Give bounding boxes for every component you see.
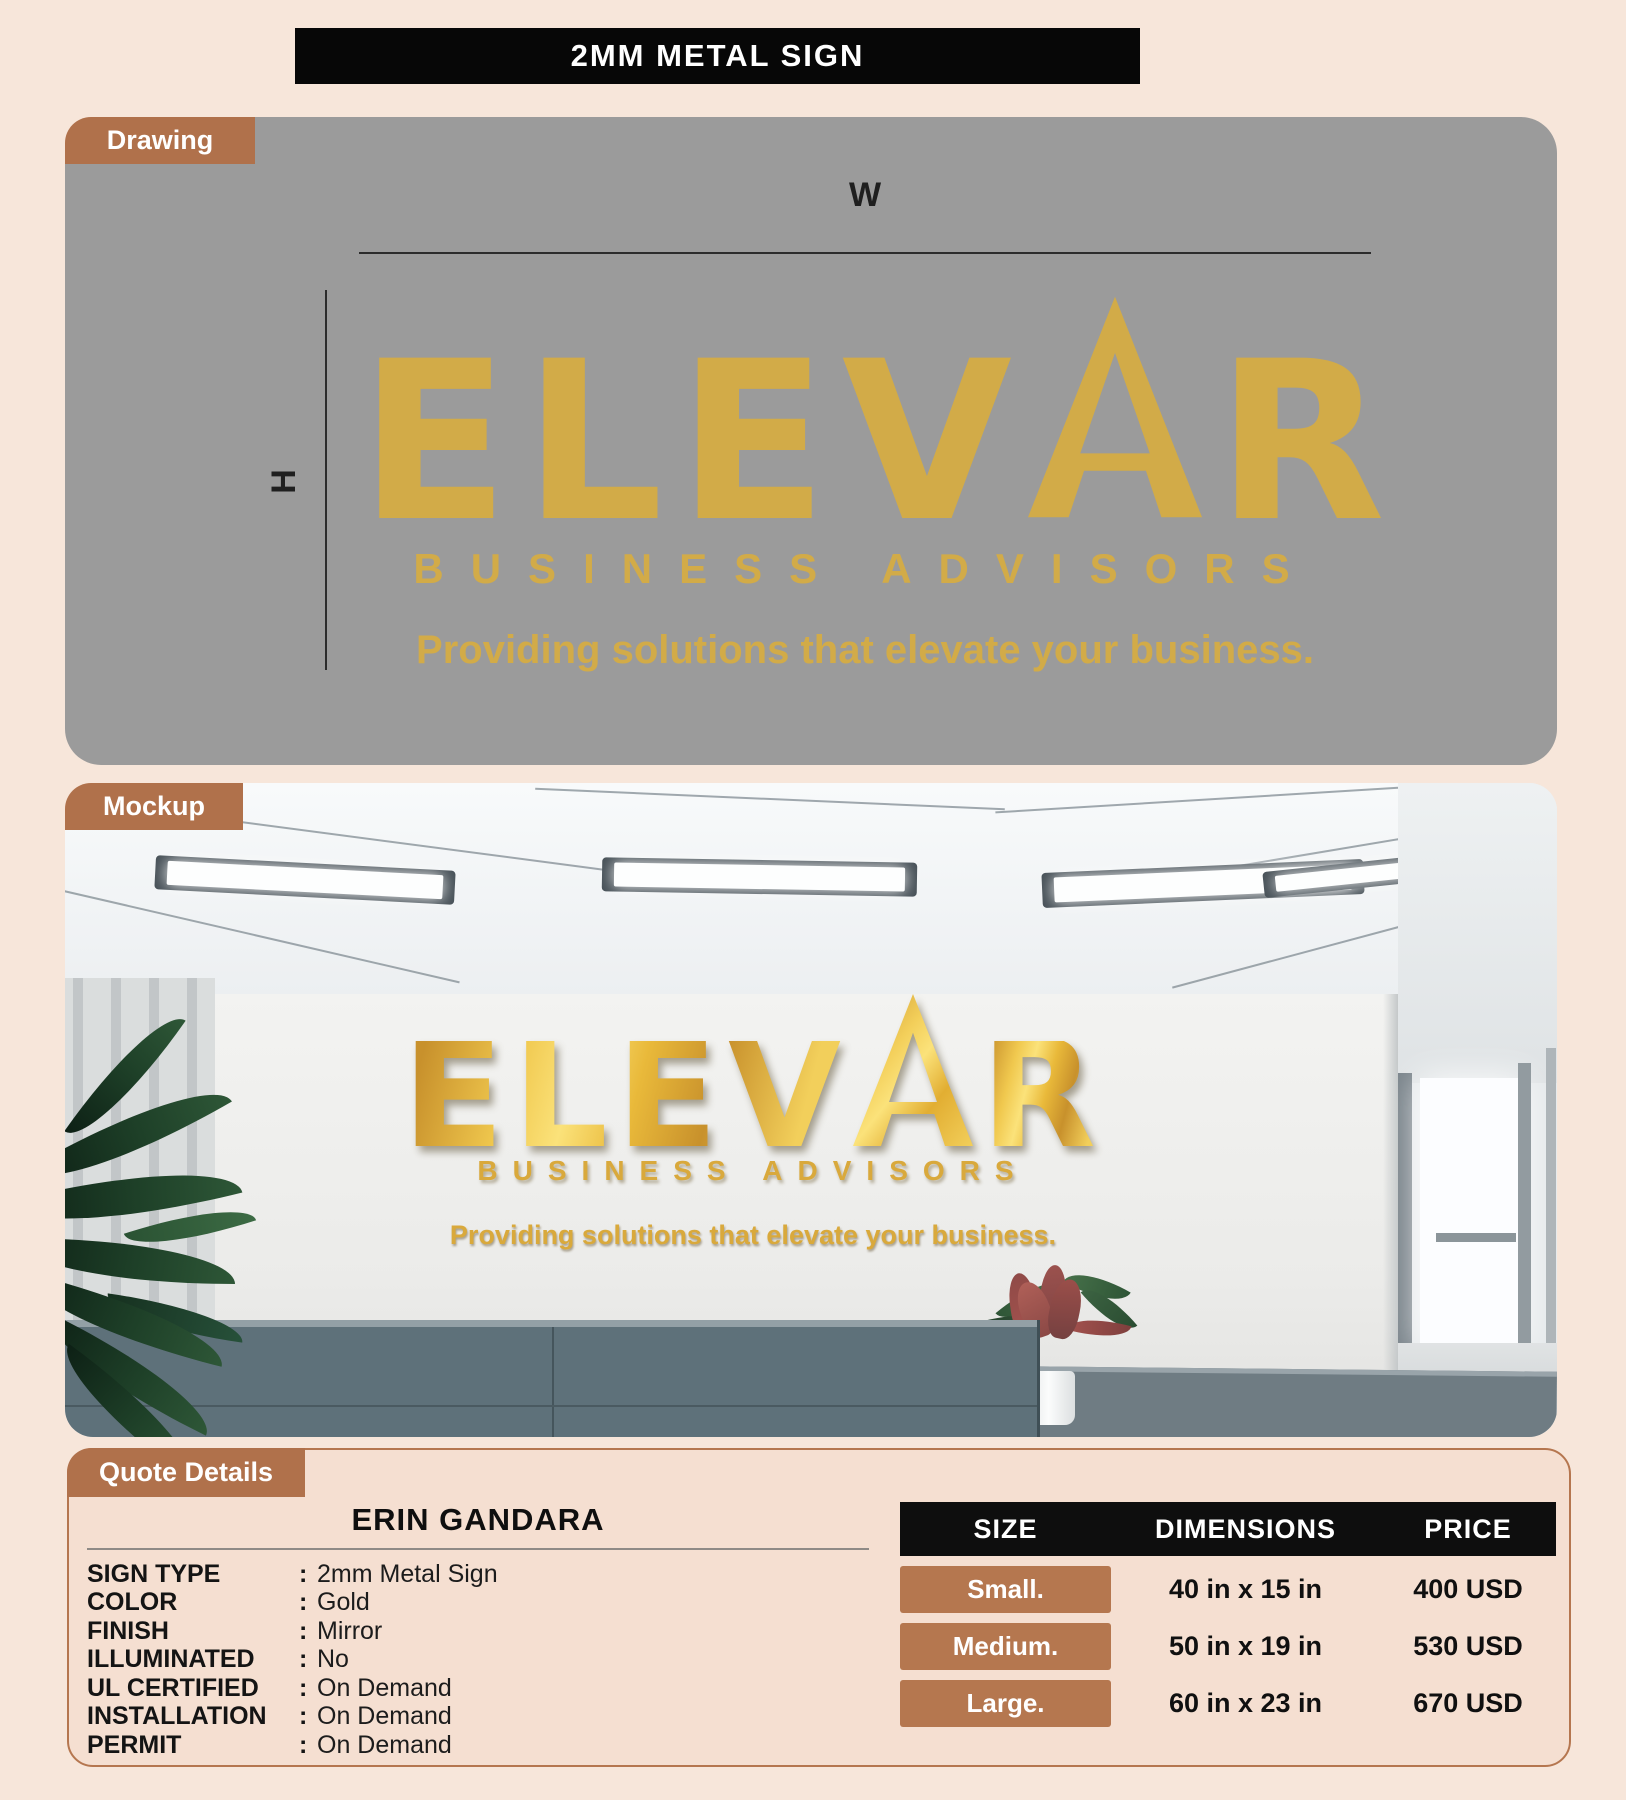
window-frame xyxy=(1518,1063,1531,1373)
logo-text-elev: ELEV xyxy=(359,362,1026,523)
sign-tagline: Providing solutions that elevate your bu… xyxy=(395,1220,1111,1251)
mockup-tab-label: Mockup xyxy=(103,791,205,822)
dimensions-value: 40 in x 15 in xyxy=(1111,1574,1380,1605)
door-frame xyxy=(1398,1073,1412,1373)
logo-text-r: R xyxy=(1216,362,1399,523)
drawing-tab-label: Drawing xyxy=(107,125,214,156)
customer-name: ERIN GANDARA xyxy=(87,1502,869,1538)
quote-details-tab: Quote Details xyxy=(67,1448,305,1497)
sign-subtitle: BUSINESS ADVISORS xyxy=(395,1155,1111,1187)
drawing-tab: Drawing xyxy=(65,117,255,164)
width-dimension-line xyxy=(359,252,1371,254)
dimensions-value: 60 in x 23 in xyxy=(1111,1688,1380,1719)
quote-field-row: PERMIT : On Demand xyxy=(87,1731,887,1760)
elevar-a-icon xyxy=(1028,296,1202,518)
size-option-medium[interactable]: Medium. xyxy=(900,1623,1111,1670)
pricing-table: SIZE DIMENSIONS PRICE Small. 40 in x 15 … xyxy=(900,1502,1556,1727)
col-header-size: SIZE xyxy=(900,1514,1111,1545)
price-value: 400 USD xyxy=(1380,1574,1556,1605)
pricing-row-medium: Medium. 50 in x 19 in 530 USD xyxy=(900,1623,1556,1670)
logo-text-elev: ELEV xyxy=(402,1041,851,1151)
ceiling-light xyxy=(602,857,918,896)
elevar-sign-mockup: ELEV R xyxy=(395,994,1111,1150)
bright-window xyxy=(1420,1078,1525,1348)
ceiling-grid-line xyxy=(535,788,1005,810)
window-frame xyxy=(1546,1048,1556,1393)
page-title: 2MM METAL SIGN xyxy=(571,38,865,74)
height-dimension-line xyxy=(325,290,327,670)
elevar-logo-drawing: ELEV R xyxy=(359,296,1399,523)
col-header-price: PRICE xyxy=(1380,1514,1556,1545)
quote-field-row: INSTALLATION : On Demand xyxy=(87,1703,887,1732)
quote-field-row: UL CERTIFIED : On Demand xyxy=(87,1674,887,1703)
price-value: 670 USD xyxy=(1380,1688,1556,1719)
size-option-small[interactable]: Small. xyxy=(900,1566,1111,1613)
divider xyxy=(87,1548,869,1550)
height-dimension-label: H xyxy=(265,469,304,494)
quote-sheet-page: 2MM METAL SIGN W H ELEV R BUSINESS ADVIS… xyxy=(0,0,1626,1800)
price-value: 530 USD xyxy=(1380,1631,1556,1662)
size-option-large[interactable]: Large. xyxy=(900,1680,1111,1727)
drawing-section: W H ELEV R BUSINESS ADVISORS Providing s… xyxy=(65,117,1557,765)
logo-text-r: R xyxy=(981,1041,1105,1151)
quote-field-row: ILLUMINATED : No xyxy=(87,1646,887,1675)
pricing-row-large: Large. 60 in x 23 in 670 USD xyxy=(900,1680,1556,1727)
ceiling-grid-line xyxy=(995,785,1434,814)
dimensions-value: 50 in x 19 in xyxy=(1111,1631,1380,1662)
pricing-row-small: Small. 40 in x 15 in 400 USD xyxy=(900,1566,1556,1613)
quote-fields: SIGN TYPE : 2mm Metal Sign COLOR : Gold … xyxy=(87,1560,887,1760)
width-dimension-label: W xyxy=(845,176,885,215)
quote-tab-label: Quote Details xyxy=(99,1457,273,1488)
pricing-table-header: SIZE DIMENSIONS PRICE xyxy=(900,1502,1556,1556)
quote-field-row: FINISH : Mirror xyxy=(87,1617,887,1646)
quote-field-row: SIGN TYPE : 2mm Metal Sign xyxy=(87,1560,887,1589)
logo-subtitle: BUSINESS ADVISORS xyxy=(359,545,1371,593)
window-rail xyxy=(1436,1233,1516,1242)
title-banner: 2MM METAL SIGN xyxy=(295,28,1140,84)
elevar-a-icon xyxy=(853,994,973,1146)
logo-tagline: Providing solutions that elevate your bu… xyxy=(359,628,1371,673)
quote-field-row: COLOR : Gold xyxy=(87,1589,887,1618)
col-header-dimensions: DIMENSIONS xyxy=(1111,1514,1380,1545)
side-counter xyxy=(1004,1366,1557,1437)
office-hallway xyxy=(1398,783,1557,1437)
mockup-tab: Mockup xyxy=(65,783,243,830)
mockup-section: ELEV R BUSINESS ADVISORS Providing solut… xyxy=(65,783,1557,1437)
